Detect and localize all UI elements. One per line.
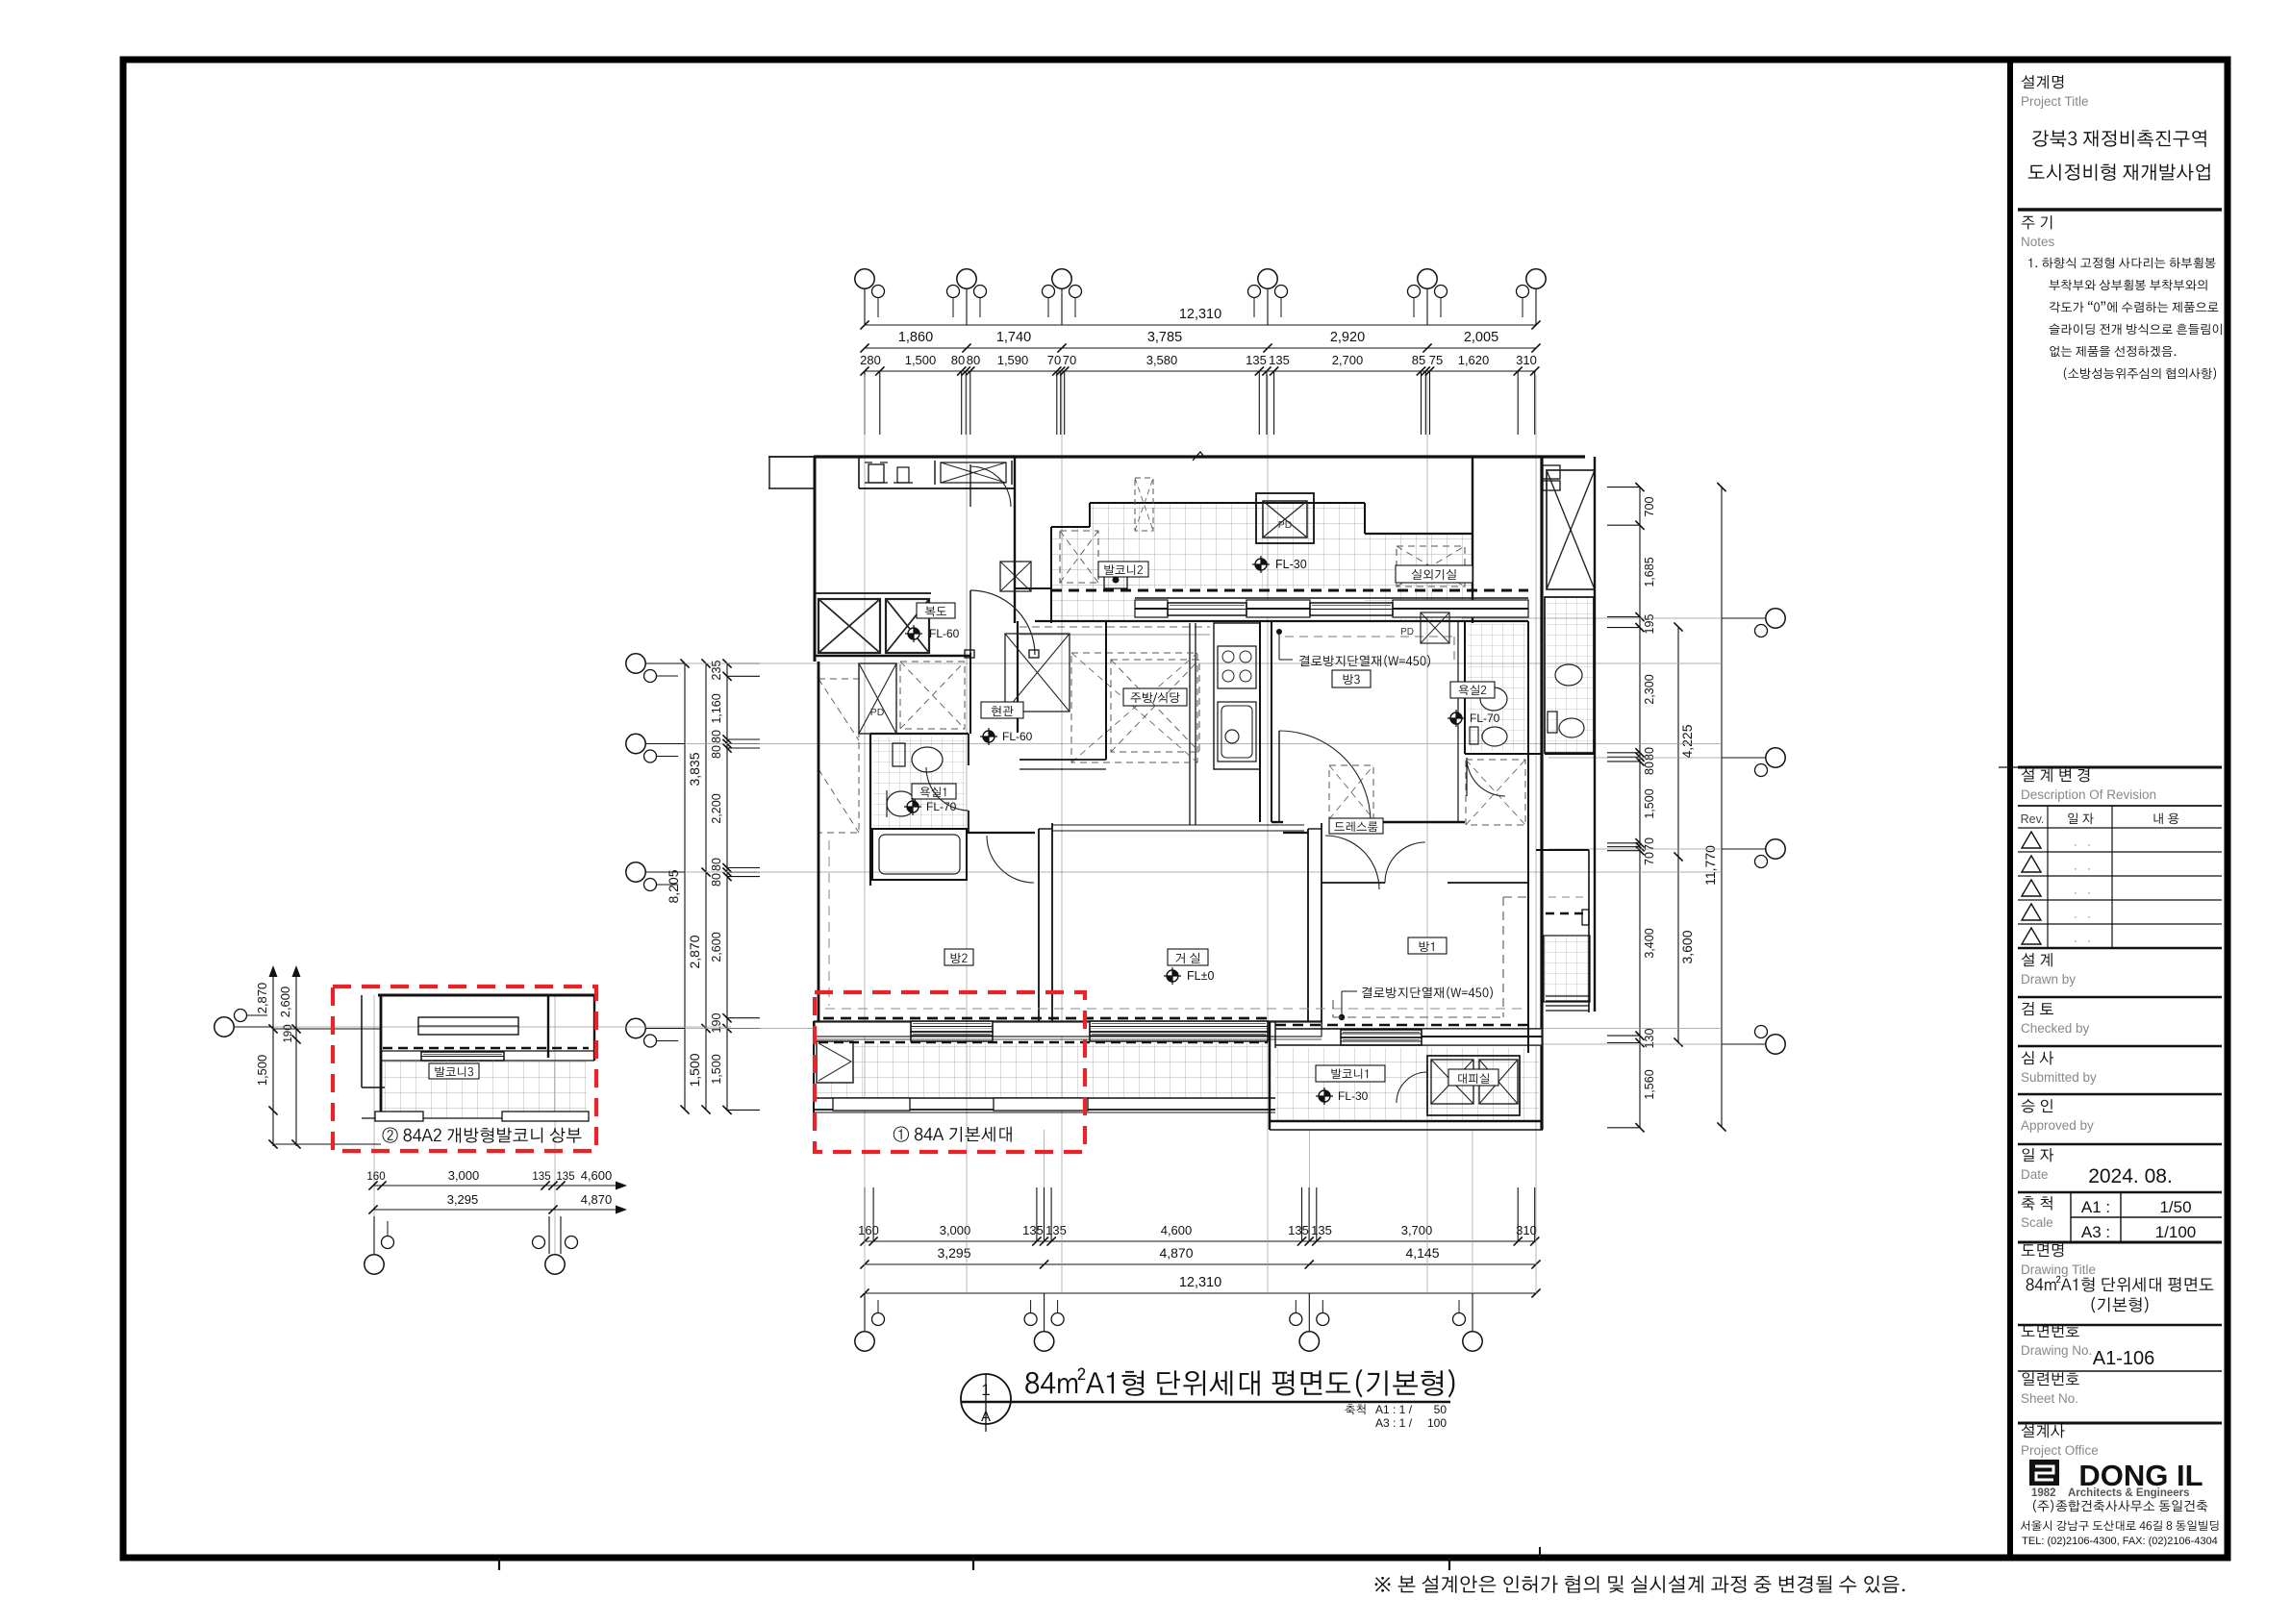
svg-text:4,600: 4,600 — [581, 1168, 613, 1183]
svg-text:3,785: 3,785 — [1147, 330, 1182, 345]
svg-text:A3 : 1 /: A3 : 1 / — [1375, 1416, 1413, 1430]
svg-text:.: . — [2087, 934, 2090, 945]
svg-text:135: 135 — [1022, 1223, 1044, 1237]
svg-text:3,600: 3,600 — [1679, 930, 1695, 963]
svg-text:1,590: 1,590 — [997, 353, 1029, 367]
svg-text:80: 80 — [951, 353, 965, 367]
svg-text:100: 100 — [1427, 1416, 1447, 1430]
svg-text:.: . — [2074, 886, 2077, 897]
svg-text:12,310: 12,310 — [1179, 1275, 1221, 1290]
svg-text:Project Title: Project Title — [2021, 94, 2089, 109]
svg-text:135: 135 — [1246, 353, 1267, 367]
svg-text:Drawn by: Drawn by — [2021, 972, 2076, 987]
svg-text:50: 50 — [1434, 1403, 1448, 1416]
svg-text:Date: Date — [2021, 1167, 2049, 1182]
svg-text:135: 135 — [1045, 1223, 1067, 1237]
svg-text:FL-60: FL-60 — [1002, 730, 1033, 743]
svg-text:Description Of Revision: Description Of Revision — [2021, 787, 2156, 802]
svg-text:3,000: 3,000 — [448, 1168, 480, 1183]
svg-text:80: 80 — [1643, 747, 1656, 761]
svg-text:.: . — [2074, 910, 2077, 921]
svg-text:3,700: 3,700 — [1401, 1223, 1433, 1237]
svg-text:1,620: 1,620 — [1458, 353, 1490, 367]
svg-text:Sheet No.: Sheet No. — [2021, 1391, 2078, 1406]
svg-text:2,920: 2,920 — [1330, 330, 1365, 345]
svg-text:FL-30: FL-30 — [1275, 558, 1307, 571]
svg-text:2,005: 2,005 — [1464, 330, 1498, 345]
svg-text:Notes: Notes — [2021, 235, 2055, 249]
svg-text:.: . — [2074, 837, 2077, 849]
svg-text:11,770: 11,770 — [1702, 845, 1718, 886]
svg-text:Rev.: Rev. — [2021, 812, 2045, 826]
svg-text:8,205: 8,205 — [666, 869, 681, 903]
svg-text:70: 70 — [1047, 353, 1061, 367]
svg-text:1/50: 1/50 — [2159, 1198, 2191, 1216]
svg-text:Drawing No.: Drawing No. — [2021, 1343, 2092, 1358]
svg-text:.: . — [2074, 934, 2077, 945]
svg-text:Submitted by: Submitted by — [2021, 1070, 2097, 1085]
svg-text:Drawing Title: Drawing Title — [2021, 1262, 2096, 1277]
svg-text:4,600: 4,600 — [1161, 1223, 1193, 1237]
svg-text:190: 190 — [710, 1013, 723, 1034]
svg-text:80: 80 — [967, 353, 980, 367]
svg-text:3,835: 3,835 — [687, 752, 702, 786]
svg-text:80: 80 — [1643, 762, 1656, 775]
svg-text:1,500: 1,500 — [255, 1055, 269, 1087]
svg-text:12,310: 12,310 — [1179, 307, 1221, 322]
svg-text:.: . — [2087, 886, 2090, 897]
svg-text:FL-70: FL-70 — [1470, 712, 1500, 725]
svg-text:75: 75 — [1429, 353, 1443, 367]
svg-text:1,500: 1,500 — [905, 353, 937, 367]
svg-text:.: . — [2074, 862, 2077, 873]
svg-text:3,295: 3,295 — [937, 1245, 970, 1261]
svg-text:4,145: 4,145 — [1405, 1245, 1439, 1261]
svg-text:.: . — [2087, 837, 2090, 849]
svg-text:135: 135 — [1311, 1223, 1332, 1237]
svg-text:A: A — [981, 1409, 991, 1425]
svg-text:160: 160 — [366, 1171, 385, 1183]
svg-text:135: 135 — [556, 1171, 574, 1183]
svg-text:1,860: 1,860 — [898, 330, 933, 345]
svg-text:3,295: 3,295 — [447, 1192, 479, 1207]
svg-text:TEL: (02)2106-4300, FAX: (02)2: TEL: (02)2106-4300, FAX: (02)2106-4304 — [2022, 1536, 2218, 1547]
svg-text:160: 160 — [858, 1223, 879, 1237]
svg-text:3,580: 3,580 — [1146, 353, 1178, 367]
svg-text:70: 70 — [1063, 353, 1076, 367]
svg-text:Scale: Scale — [2021, 1215, 2053, 1230]
svg-text:2,300: 2,300 — [1643, 674, 1656, 704]
svg-text:A3 :: A3 : — [2081, 1223, 2110, 1241]
svg-text:2,600: 2,600 — [278, 987, 292, 1018]
svg-text:1: 1 — [981, 1381, 990, 1399]
svg-text:195: 195 — [1643, 614, 1656, 635]
svg-text:FL-30: FL-30 — [1338, 1089, 1369, 1103]
svg-text:700: 700 — [1643, 497, 1656, 517]
svg-text:Architects & Engineers: Architects & Engineers — [2068, 1487, 2190, 1499]
svg-text:1,560: 1,560 — [1643, 1069, 1656, 1099]
svg-text:PD: PD — [870, 707, 885, 718]
svg-text:4,225: 4,225 — [1679, 724, 1695, 758]
svg-text:280: 280 — [860, 353, 881, 367]
svg-text:135: 135 — [1288, 1223, 1309, 1237]
svg-text:80: 80 — [710, 873, 723, 887]
svg-text:Checked by: Checked by — [2021, 1021, 2090, 1036]
svg-text:3,000: 3,000 — [940, 1223, 971, 1237]
svg-text:A1-106: A1-106 — [2093, 1348, 2155, 1369]
svg-text:80: 80 — [710, 730, 723, 743]
svg-text:FL±0: FL±0 — [1187, 969, 1214, 983]
svg-text:310: 310 — [1516, 1223, 1537, 1237]
svg-text:2,870: 2,870 — [255, 983, 269, 1014]
svg-text:130: 130 — [1643, 1029, 1656, 1049]
svg-text:3,400: 3,400 — [1643, 928, 1656, 958]
svg-text:A1 : 1 /: A1 : 1 / — [1375, 1403, 1413, 1416]
svg-text:2,700: 2,700 — [1332, 353, 1364, 367]
svg-text:Approved by: Approved by — [2021, 1118, 2094, 1133]
svg-text:80: 80 — [710, 858, 723, 871]
svg-text:.: . — [2087, 910, 2090, 921]
svg-text:85: 85 — [1412, 353, 1425, 367]
svg-text:2,600: 2,600 — [710, 932, 723, 962]
svg-text:1,160: 1,160 — [710, 693, 723, 723]
svg-text:1,500: 1,500 — [710, 1054, 723, 1084]
svg-text:70: 70 — [1643, 852, 1656, 865]
svg-text:2024. 08.: 2024. 08. — [2088, 1165, 2173, 1187]
svg-text:1,500: 1,500 — [1643, 788, 1656, 818]
svg-text:1/100: 1/100 — [2155, 1223, 2197, 1241]
svg-text:FL-60: FL-60 — [929, 627, 960, 640]
svg-text:PD: PD — [1400, 627, 1414, 637]
svg-text:Project Office: Project Office — [2021, 1443, 2099, 1458]
svg-text:135: 135 — [532, 1171, 550, 1183]
svg-text:190: 190 — [283, 1024, 294, 1042]
svg-text:1,685: 1,685 — [1643, 557, 1656, 587]
svg-text:A1 :: A1 : — [2081, 1198, 2110, 1216]
svg-text:1,740: 1,740 — [996, 330, 1031, 345]
svg-text:4,870: 4,870 — [1159, 1245, 1193, 1261]
svg-text:1982: 1982 — [2031, 1487, 2056, 1499]
svg-text:2,200: 2,200 — [710, 793, 723, 823]
svg-text:80: 80 — [710, 745, 723, 759]
svg-text:PD: PD — [1278, 519, 1293, 531]
svg-text:.: . — [2087, 862, 2090, 873]
svg-text:4,870: 4,870 — [581, 1192, 613, 1207]
svg-text:135: 135 — [1269, 353, 1290, 367]
svg-text:2,870: 2,870 — [687, 935, 702, 968]
svg-text:310: 310 — [1516, 353, 1537, 367]
svg-text:1,500: 1,500 — [687, 1053, 702, 1087]
